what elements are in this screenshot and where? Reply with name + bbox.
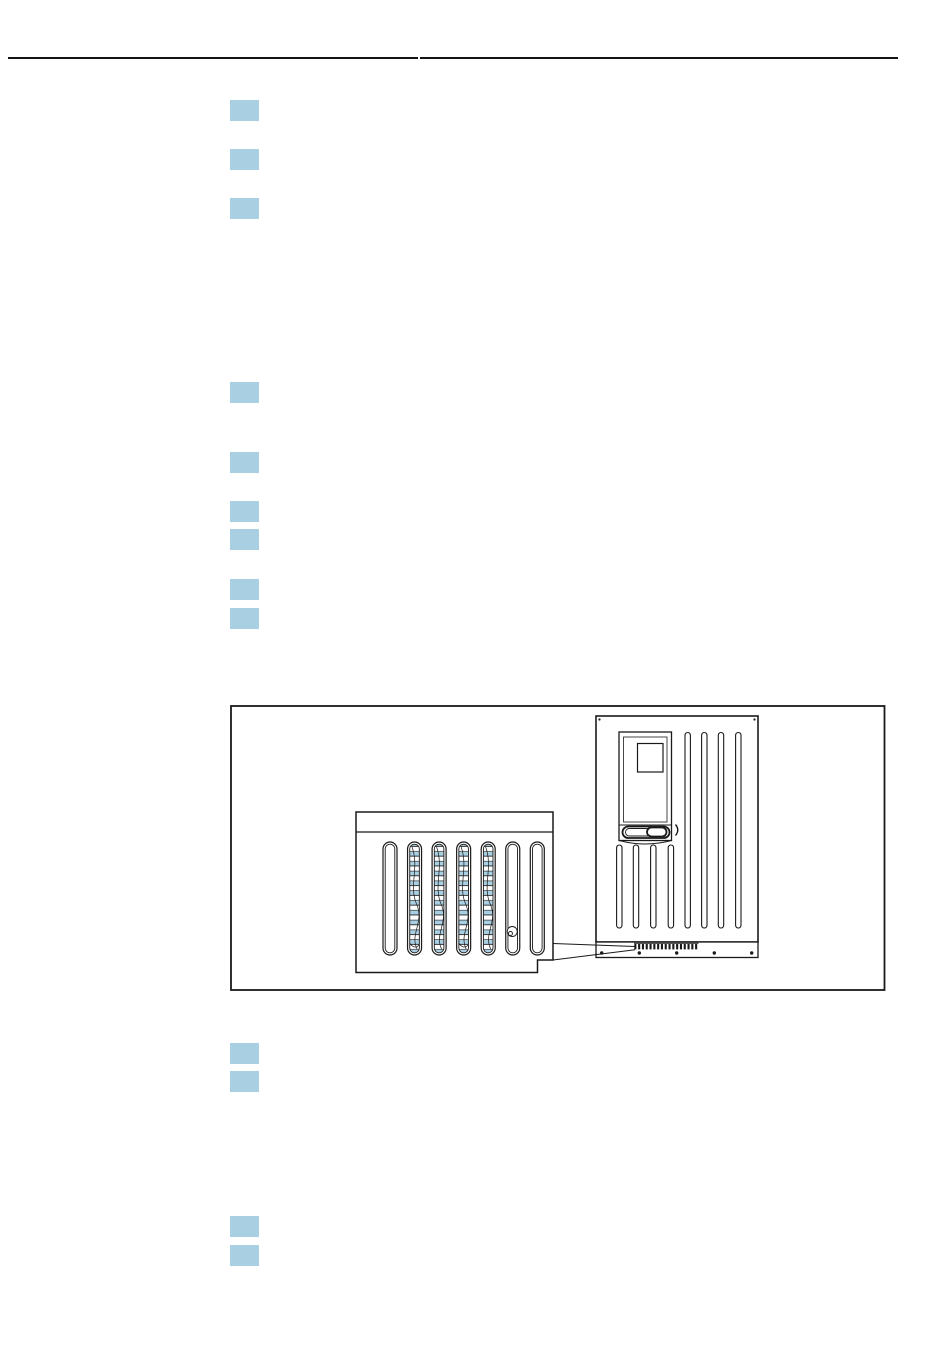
filter-slot-with-mat [481,842,495,955]
grille-tooth [676,944,678,949]
figure-border [231,706,885,990]
screw-dot [753,718,755,720]
redacted-text-highlight [230,1245,259,1266]
redacted-text-highlight [230,608,259,629]
grille-tooth [691,944,693,949]
vent-slat [668,845,673,928]
screw-dot [750,951,753,954]
controller-door [619,732,678,844]
grille-tooth [646,944,648,949]
vent-slat [685,733,690,929]
screw-dot [598,718,600,720]
vent-slat [617,845,622,928]
filter-slot-with-mat [432,842,446,955]
grille-inset-magnified [356,812,553,973]
vent-slat [702,733,707,929]
navigator-button [647,828,667,837]
vent-slot [383,842,397,955]
grille-tooth [653,944,655,949]
grille-tooth [684,944,686,949]
vent-slat [651,845,656,928]
screw-dot [713,951,716,954]
redacted-text-highlight [230,501,259,522]
vent-slot [506,842,520,955]
redacted-text-highlight [230,1071,259,1092]
grille-tooth [695,944,697,949]
vent-slots [383,842,544,955]
document-page [0,0,950,1369]
filter-slot-with-mat [457,842,471,955]
fan-grille-teeth [634,943,699,949]
figure-fan-filter-grille [230,705,886,992]
redacted-text-highlight [230,382,259,403]
grille-tooth [680,944,682,949]
analyzer-cabinet [596,716,758,958]
redacted-text-highlight [230,100,259,121]
display-window [638,744,664,773]
redacted-text-highlight [230,198,259,219]
grille-tooth [665,944,667,949]
redacted-text-highlight [230,1216,259,1237]
screw-dot [638,951,641,954]
redacted-text-highlight [230,529,259,550]
filter-slot-with-mat [408,842,422,955]
grille-tooth [661,944,663,949]
redacted-text-highlight [230,1043,259,1064]
screw-dot [675,951,678,954]
vent-slot [530,842,544,955]
vent-slat [718,733,723,929]
redacted-text-highlight [230,579,259,600]
vent-slat [633,845,638,928]
grille-tooth [657,944,659,949]
grille-tooth [642,944,644,949]
grille-tooth [650,944,652,949]
redacted-text-highlight [230,452,259,473]
slot-inner [533,844,543,953]
slot-inner [385,844,395,953]
filter-mat-curl [507,927,517,937]
mat-curl-inner [508,932,512,936]
header-rule-right [420,57,898,59]
redacted-text-highlight [230,149,259,170]
grille-tooth [688,944,690,949]
vent-slat [736,733,741,929]
header-rule-left [8,57,418,59]
grille-tooth [638,944,640,949]
grille-tooth [672,944,674,949]
grille-tooth [669,944,671,949]
